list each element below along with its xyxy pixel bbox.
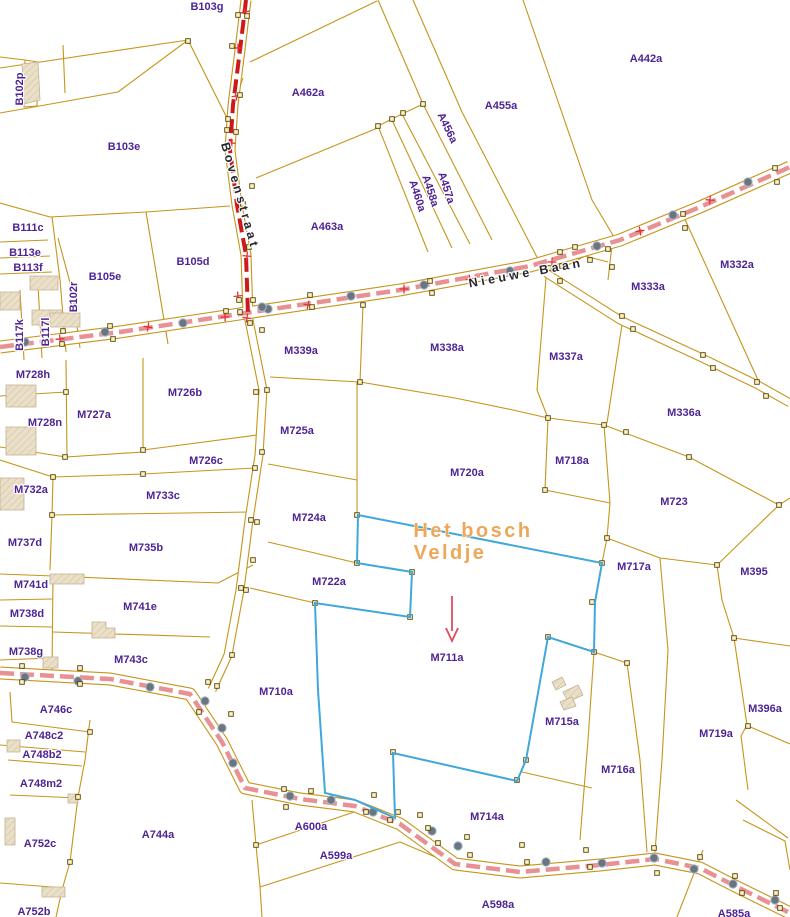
boundary-vertex-icon [51,475,56,480]
parcel-label: M735b [129,542,164,554]
boundary-vertex-icon [775,180,780,185]
boundary-vertex-icon [50,513,55,518]
boundary-vertex-icon [244,588,249,593]
parcel-label: M733c [146,490,180,502]
boundary-vertex-icon [265,388,270,393]
boundary-vertex-icon [76,795,81,800]
boundary-vertex-icon [88,730,93,735]
road-point-marker-icon [327,796,335,804]
boundary-vertex-icon [625,661,630,666]
parcel-label: B105d [176,256,209,268]
parcel-label: M711a [430,652,464,664]
boundary-vertex-icon [61,329,66,334]
boundary-vertex-icon [309,789,314,794]
parcel-label: M333a [631,281,666,293]
parcel-label: M723 [660,496,688,508]
parcel-label: M726c [189,455,223,467]
boundary-vertex-icon [68,860,73,865]
boundary-vertex-icon [226,117,231,122]
boundary-vertex-icon [254,390,259,395]
boundary-vertex-icon [229,712,234,717]
boundary-vertex-icon [141,472,146,477]
boundary-vertex-icon [78,666,83,671]
boundary-vertex-icon [282,787,287,792]
boundary-vertex-icon [260,450,265,455]
boundary-vertex-icon [308,293,313,298]
boundary-vertex-icon [255,520,260,525]
parcel-label: M719a [699,728,734,740]
road-point-marker-icon [771,896,779,904]
parcel-label: M732a [14,484,49,496]
parcel-label: M741e [123,601,157,613]
road-point-marker-icon [542,858,550,866]
parcel-label: A748b2 [22,749,61,761]
boundary-vertex-icon [230,44,235,49]
boundary-vertex-icon [60,342,65,347]
parcel-label: M336a [667,407,702,419]
parcel-label: M741d [14,579,48,591]
parcel-label: A748m2 [20,778,62,790]
boundary-vertex-icon [251,298,256,303]
boundary-vertex-icon [520,843,525,848]
building-footprint [5,818,15,845]
boundary-vertex-icon [430,291,435,296]
boundary-vertex-icon [20,680,25,685]
parcel-label: M727a [77,409,112,421]
boundary-vertex-icon [701,353,706,358]
parcel-label: M737d [8,537,42,549]
boundary-vertex-icon [260,328,265,333]
boundary-vertex-icon [605,536,610,541]
boundary-vertex-icon [746,724,751,729]
boundary-vertex-icon [683,226,688,231]
boundary-vertex-icon [543,488,548,493]
road-point-marker-icon [229,759,237,767]
parcel-label: B102r [68,281,80,312]
parcel-label: M395 [740,566,768,578]
boundary-vertex-icon [546,416,551,421]
boundary-vertex-icon [681,212,686,217]
boundary-vertex-icon [186,39,191,44]
boundary-vertex-icon [715,563,720,568]
boundary-vertex-icon [764,394,769,399]
parcel-label: M725a [280,425,315,437]
parcel-label: B117l [40,318,52,347]
boundary-vertex-icon [652,846,657,851]
boundary-vertex-icon [755,380,760,385]
parcel-label: B111c [12,222,43,234]
road-point-marker-icon [179,319,187,327]
parcel-label: A744a [142,829,175,841]
boundary-vertex-icon [468,853,473,858]
boundary-vertex-icon [361,303,366,308]
boundary-vertex-icon [655,871,660,876]
parcel-label: A455a [485,100,518,112]
boundary-vertex-icon [584,848,589,853]
building-footprint [42,887,65,897]
road-point-marker-icon [258,303,266,311]
road-point-marker-icon [454,842,462,850]
parcel-label: M720a [450,467,485,479]
boundary-vertex-icon [396,810,401,815]
parcel-label: M339a [284,345,319,357]
boundary-vertex-icon [358,380,363,385]
parcel-label: A599a [320,850,353,862]
road-point-marker-icon [347,292,355,300]
parcel-label: A752b [17,906,50,917]
boundary-vertex-icon [588,258,593,263]
parcel-label: M715a [545,716,580,728]
parcel-label: M743c [114,654,148,666]
map-background [0,0,790,917]
boundary-vertex-icon [237,298,242,303]
road-point-marker-icon [146,683,154,691]
parcel-label: B102p [14,72,26,105]
boundary-vertex-icon [376,124,381,129]
road-point-marker-icon [201,697,209,705]
parcel-label: B105e [89,271,121,283]
parcel-label: B103g [190,1,223,13]
parcel-label: M726b [168,387,203,399]
parcel-label: M722a [312,576,347,588]
building-footprint [50,313,80,327]
boundary-vertex-icon [777,503,782,508]
road-point-marker-icon [286,792,294,800]
parcel-label: M338a [430,342,465,354]
boundary-vertex-icon [249,518,254,523]
boundary-vertex-icon [711,366,716,371]
boundary-vertex-icon [238,310,243,315]
boundary-vertex-icon [248,321,253,326]
parcel-label: A746c [40,704,72,716]
boundary-vertex-icon [141,448,146,453]
boundary-vertex-icon [250,184,255,189]
boundary-vertex-icon [418,813,423,818]
road-point-marker-icon [598,859,606,867]
boundary-vertex-icon [390,117,395,122]
road-point-marker-icon [420,281,428,289]
parcel-label: A598a [482,899,515,911]
building-footprint [50,574,84,584]
boundary-vertex-icon [111,337,116,342]
boundary-vertex-icon [610,265,615,270]
parcel-label: M728h [16,369,51,381]
parcel-label: M714a [470,811,505,823]
boundary-vertex-icon [426,826,431,831]
parcel-label: M717a [617,561,652,573]
parcel-label: B113e [9,247,41,259]
road-point-marker-icon [744,178,752,186]
boundary-vertex-icon [631,327,636,332]
boundary-vertex-icon [225,128,230,133]
boundary-vertex-icon [238,93,243,98]
boundary-vertex-icon [20,664,25,669]
road-point-marker-icon [729,880,737,888]
parcel-label: M332a [720,259,755,271]
parcel-label: M738g [9,646,43,658]
building-footprint [6,427,36,455]
area-name-label: Het bosch [413,520,532,542]
boundary-vertex-icon [254,843,259,848]
parcel-label: A752c [24,838,56,850]
boundary-vertex-icon [401,111,406,116]
building-footprint [43,657,58,668]
boundary-vertex-icon [606,247,611,252]
boundary-vertex-icon [774,891,779,896]
parcel-label: A462a [292,87,325,99]
boundary-vertex-icon [588,865,593,870]
boundary-vertex-icon [525,860,530,865]
boundary-vertex-icon [108,324,113,329]
boundary-vertex-icon [620,314,625,319]
boundary-vertex-icon [388,818,393,823]
road-point-marker-icon [593,242,601,250]
boundary-vertex-icon [251,558,256,563]
boundary-vertex-icon [465,835,470,840]
parcel-label: M724a [292,512,327,524]
boundary-vertex-icon [773,166,778,171]
road-point-marker-icon [101,328,109,336]
boundary-vertex-icon [740,891,745,896]
building-footprint [30,276,58,290]
boundary-vertex-icon [253,466,258,471]
boundary-vertex-icon [236,13,241,18]
boundary-vertex-icon [234,130,239,135]
road-point-marker-icon [669,211,677,219]
boundary-vertex-icon [63,455,68,460]
boundary-vertex-icon [590,600,595,605]
boundary-vertex-icon [372,793,377,798]
boundary-vertex-icon [206,680,211,685]
parcel-label: M710a [259,686,294,698]
boundary-vertex-icon [428,279,433,284]
parcel-label: M718a [555,455,590,467]
cadastral-map[interactable]: B103gB102pB103eA462aA455aA442aA456aA457a… [0,0,790,917]
boundary-vertex-icon [436,841,441,846]
road-point-marker-icon [650,854,658,862]
boundary-vertex-icon [558,279,563,284]
parcel-label: A585a [718,908,751,917]
parcel-label: B113f [13,262,43,274]
boundary-vertex-icon [421,102,426,107]
boundary-vertex-icon [778,906,783,911]
boundary-vertex-icon [602,423,607,428]
parcel-label: A442a [630,53,663,65]
parcel-label: M337a [549,351,584,363]
boundary-vertex-icon [224,309,229,314]
parcel-label: B117k [14,318,26,351]
parcel-label: A600a [295,821,328,833]
boundary-vertex-icon [230,653,235,658]
boundary-vertex-icon [64,390,69,395]
parcel-label: B103e [108,141,140,153]
parcel-label: M738d [10,608,44,620]
parcel-label: A748c2 [25,730,64,742]
boundary-vertex-icon [573,245,578,250]
building-footprint [7,740,20,752]
boundary-vertex-icon [239,586,244,591]
boundary-vertex-icon [197,710,202,715]
boundary-vertex-icon [364,810,369,815]
parcel-label: M396a [748,703,783,715]
parcel-label: A463a [311,221,344,233]
parcel-label: M728n [28,417,63,429]
boundary-vertex-icon [624,430,629,435]
parcel-label: M716a [601,764,636,776]
boundary-vertex-icon [698,855,703,860]
map-viewport[interactable]: B103gB102pB103eA462aA455aA442aA456aA457a… [0,0,790,917]
boundary-vertex-icon [687,455,692,460]
road-point-marker-icon [218,724,226,732]
boundary-vertex-icon [732,636,737,641]
boundary-vertex-icon [215,684,220,689]
road-point-marker-icon [690,865,698,873]
boundary-vertex-icon [733,874,738,879]
building-footprint [0,292,20,310]
boundary-vertex-icon [78,682,83,687]
boundary-vertex-icon [310,305,315,310]
boundary-vertex-icon [245,14,250,19]
building-footprint [6,385,36,407]
boundary-vertex-icon [284,805,289,810]
area-name-label: Veldje [414,542,487,564]
boundary-vertex-icon [558,250,563,255]
